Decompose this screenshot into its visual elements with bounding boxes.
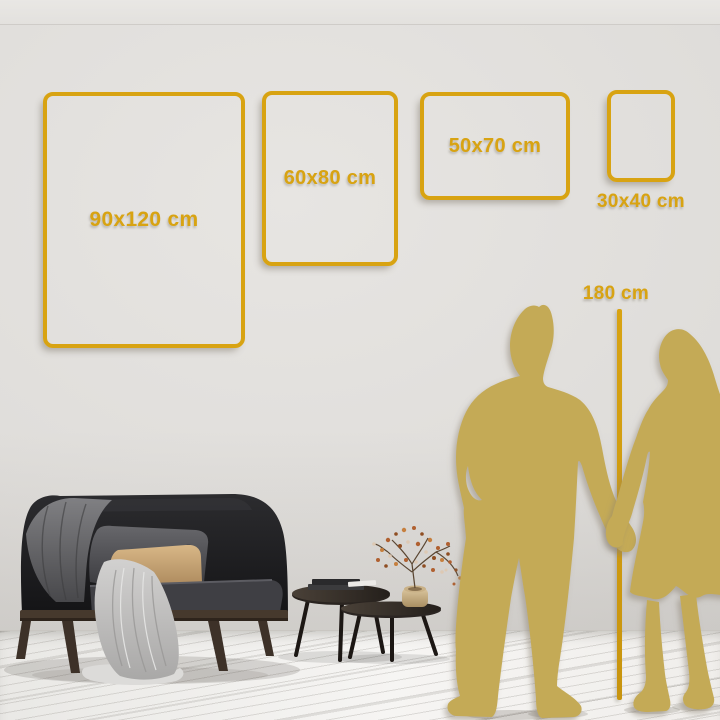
size-guide-scene: 90x120 cm 60x80 cm 50x70 cm 30x40 cm 180… xyxy=(0,0,720,720)
couple-silhouettes xyxy=(440,290,720,720)
frame-50x70-label: 50x70 cm xyxy=(449,135,541,158)
sofa-illustration xyxy=(0,470,310,720)
frame-30x40 xyxy=(607,90,675,182)
brass-vase xyxy=(402,586,428,608)
frame-50x70: 50x70 cm xyxy=(420,92,570,200)
frame-60x80-label: 60x80 cm xyxy=(284,167,376,190)
man-silhouette xyxy=(447,305,636,718)
ceiling-line xyxy=(0,0,720,25)
frame-30x40-label: 30x40 cm xyxy=(586,191,696,213)
frame-60x80: 60x80 cm xyxy=(262,91,398,266)
woman-silhouette xyxy=(606,329,720,712)
frame-90x120: 90x120 cm xyxy=(43,92,245,348)
frame-90x120-label: 90x120 cm xyxy=(90,208,199,232)
